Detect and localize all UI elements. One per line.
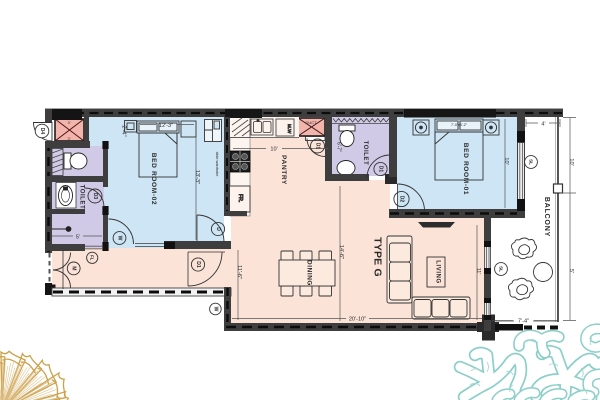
svg-text:slide wardrobe: slide wardrobe <box>215 152 219 177</box>
svg-text:11': 11' <box>475 268 481 275</box>
svg-text:D3: D3 <box>92 193 98 200</box>
svg-text:BED ROOM-02: BED ROOM-02 <box>150 153 157 205</box>
svg-text:TOILET: TOILET <box>79 185 85 210</box>
svg-text:FR.: FR. <box>237 194 243 202</box>
svg-text:5': 5' <box>76 235 80 241</box>
svg-text:LIVING: LIVING <box>435 260 441 284</box>
svg-text:10': 10' <box>568 158 574 165</box>
svg-text:20'-10": 20'-10" <box>349 317 366 323</box>
svg-text:DUCT: DUCT <box>305 120 317 125</box>
svg-text:7'-0"x6'-2": 7'-0"x6'-2" <box>451 123 468 127</box>
svg-text:M.W: M.W <box>287 124 292 134</box>
svg-text:FL: FL <box>90 255 95 261</box>
svg-text:10': 10' <box>270 147 277 153</box>
svg-text:D1: D1 <box>195 261 201 268</box>
svg-text:14'-6": 14'-6" <box>338 245 344 259</box>
svg-text:W: W <box>117 236 123 241</box>
svg-text:6'-7": 6'-7" <box>336 142 342 152</box>
svg-text:TOILET: TOILET <box>362 141 368 166</box>
svg-text:W: W <box>212 307 218 312</box>
svg-text:11'-6": 11'-6" <box>236 265 242 279</box>
svg-text:M: M <box>71 266 77 270</box>
svg-text:SL: SL <box>499 266 504 272</box>
svg-text:D1: D1 <box>315 143 321 150</box>
svg-text:7'-4": 7'-4" <box>518 319 529 325</box>
svg-text:BED ROOM-01: BED ROOM-01 <box>462 143 469 195</box>
svg-text:2'-4": 2'-4" <box>121 125 127 136</box>
svg-text:D: D <box>215 227 221 231</box>
svg-text:4': 4' <box>541 122 545 128</box>
svg-text:13'-3": 13'-3" <box>194 170 200 184</box>
svg-text:12'-3": 12'-3" <box>159 123 173 129</box>
svg-text:DINING: DINING <box>306 260 313 286</box>
svg-text:D4: D4 <box>39 128 45 135</box>
svg-text:BALCONY: BALCONY <box>543 197 550 237</box>
svg-text:D2: D2 <box>399 196 405 203</box>
svg-text:D1: D1 <box>378 166 384 173</box>
svg-text:5': 5' <box>568 269 574 273</box>
svg-text:10': 10' <box>503 157 509 164</box>
svg-text:PANTRY: PANTRY <box>280 155 287 185</box>
svg-text:3': 3' <box>68 120 71 125</box>
svg-text:SL: SL <box>529 159 534 165</box>
svg-text:3': 3' <box>68 136 71 141</box>
svg-text:TYPE G: TYPE G <box>372 237 384 277</box>
